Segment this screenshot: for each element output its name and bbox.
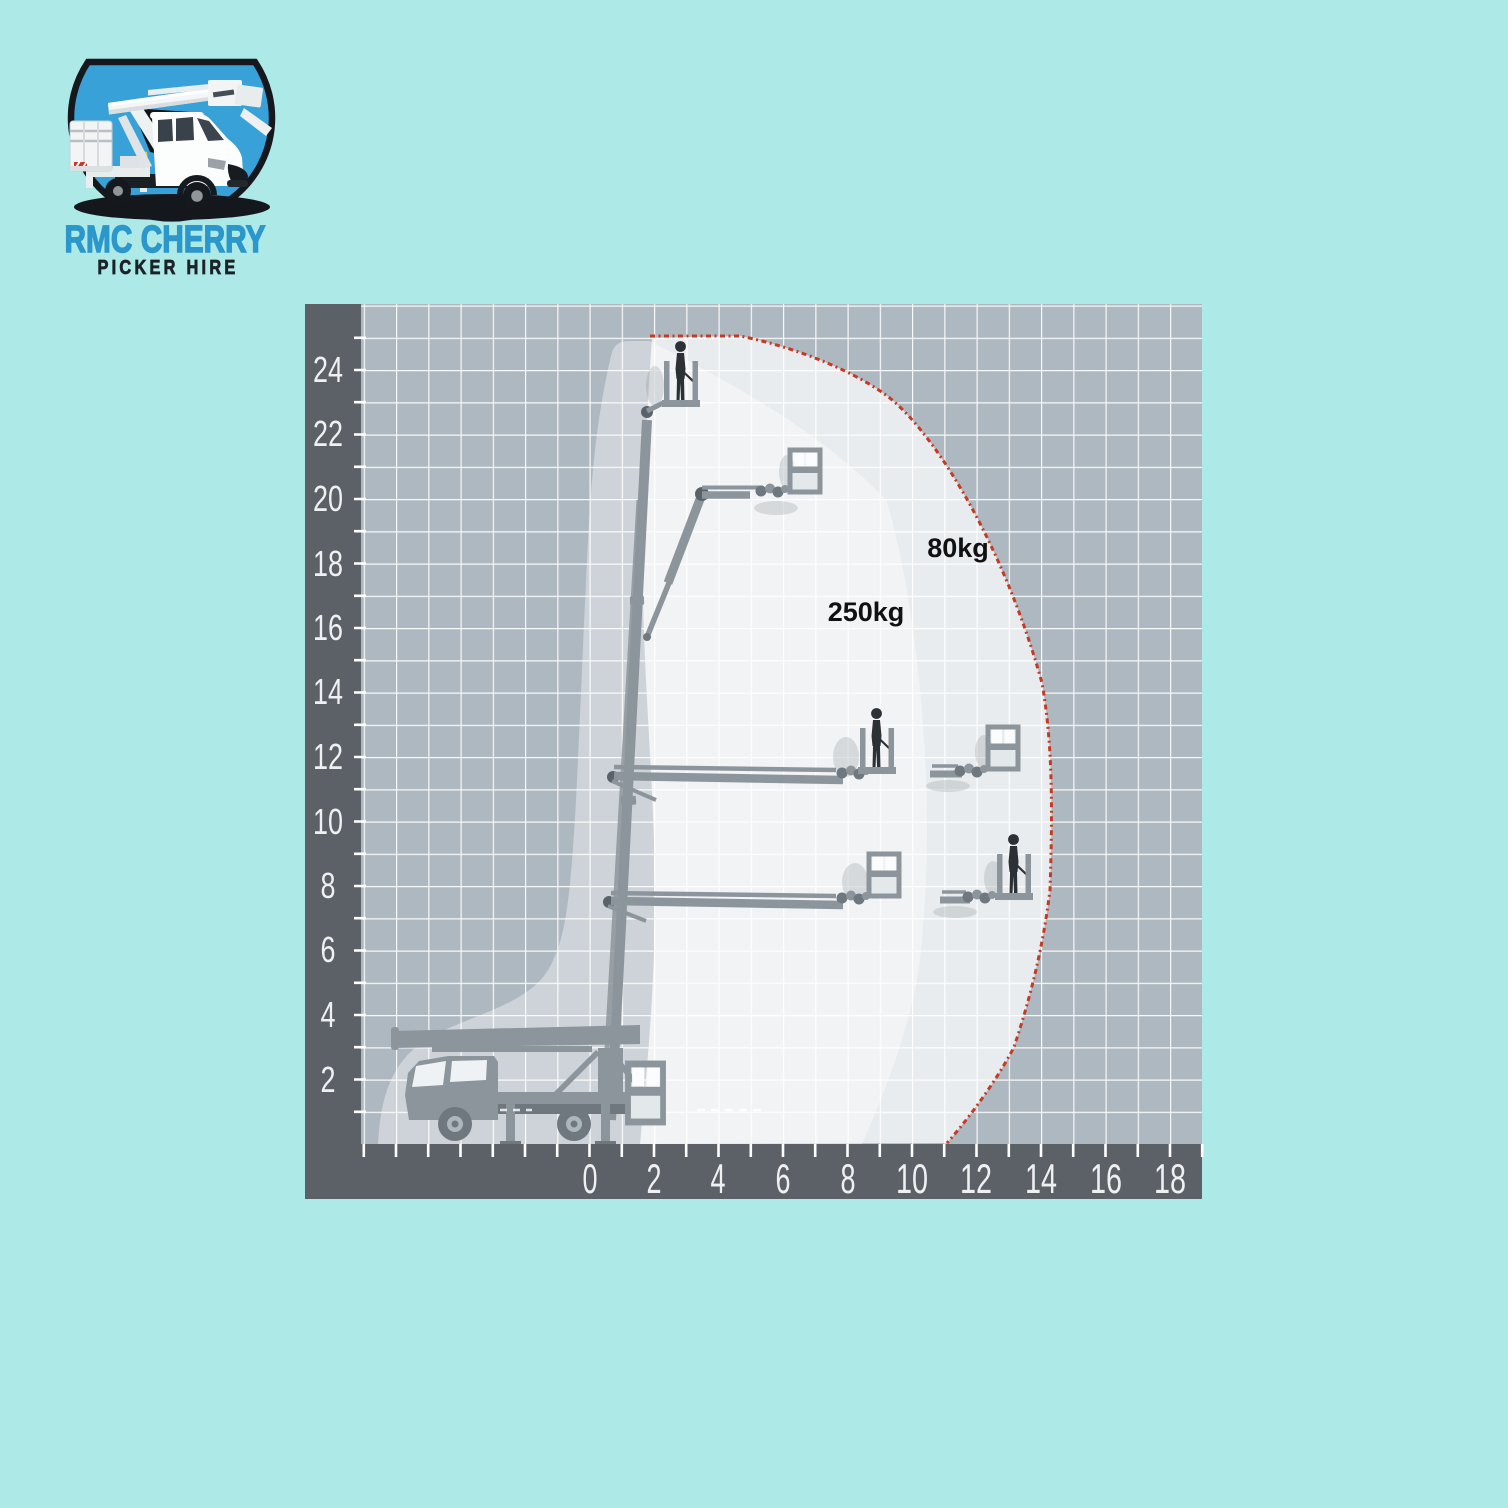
svg-text:18: 18 — [1154, 1155, 1186, 1202]
svg-text:14: 14 — [313, 671, 343, 712]
svg-text:2: 2 — [321, 1059, 336, 1100]
svg-text:80kg: 80kg — [927, 533, 989, 563]
svg-text:6: 6 — [321, 929, 336, 970]
svg-text:8: 8 — [841, 1155, 856, 1202]
svg-text:14: 14 — [1025, 1155, 1057, 1202]
svg-text:4: 4 — [711, 1155, 726, 1202]
svg-text:RMC CHERRY: RMC CHERRY — [65, 219, 266, 261]
svg-text:20: 20 — [313, 478, 343, 519]
svg-text:0: 0 — [583, 1155, 598, 1202]
svg-text:4: 4 — [321, 994, 336, 1035]
svg-text:16: 16 — [1090, 1155, 1122, 1202]
svg-text:24: 24 — [313, 349, 343, 390]
svg-text:10: 10 — [313, 801, 343, 842]
svg-text:22: 22 — [313, 413, 343, 454]
svg-text:12: 12 — [960, 1155, 992, 1202]
svg-text:6: 6 — [776, 1155, 791, 1202]
svg-text:250kg: 250kg — [828, 597, 905, 627]
svg-text:2: 2 — [647, 1155, 662, 1202]
svg-text:12: 12 — [313, 736, 343, 777]
svg-text:PICKER HIRE: PICKER HIRE — [98, 257, 239, 279]
svg-text:10: 10 — [896, 1155, 928, 1202]
svg-text:18: 18 — [313, 543, 343, 584]
svg-text:16: 16 — [313, 607, 343, 648]
svg-text:8: 8 — [321, 865, 336, 906]
